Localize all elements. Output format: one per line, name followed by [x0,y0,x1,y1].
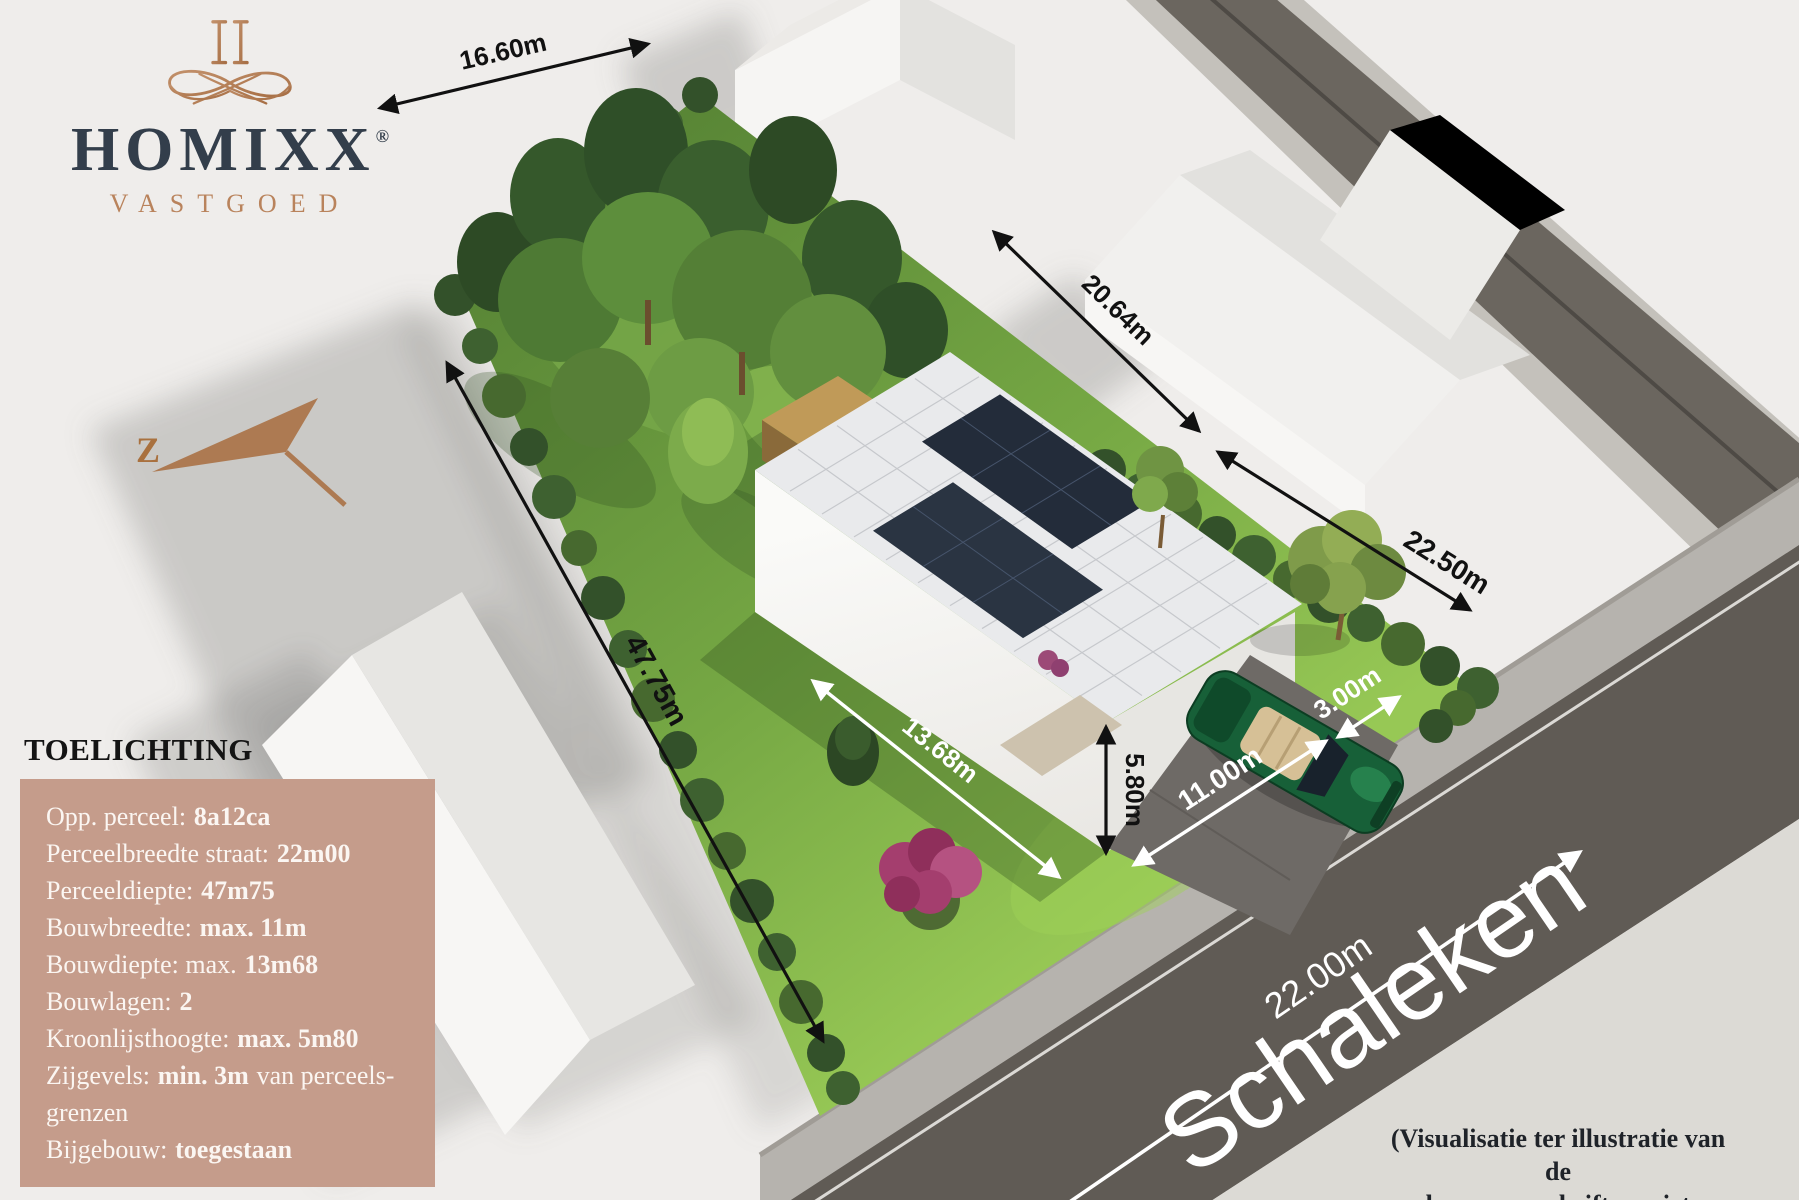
legend-item: Bouwdiepte: max.13m68 [46,946,409,983]
compass-south-label: Z [136,430,160,470]
brand-logo: HOMIXX® VASTGOED [44,14,416,219]
brand-name: HOMIXX® [44,118,416,183]
legend-title: TOELICHTING [24,732,253,768]
legend-item: Bouwlagen:2 [46,983,409,1020]
legend-box: Opp. perceel:8a12ca Perceelbreedte straa… [20,779,435,1187]
homixx-monogram-icon [145,14,315,118]
visualisation-page: 22.00m Schaleken 16.60m 20.64m 22.50m 47… [0,0,1799,1200]
registered-mark: ® [376,126,389,146]
legend-item: Perceelbreedte straat:22m00 [46,835,409,872]
disclaimer-note: (Visualisatie ter illustratie van de bou… [1390,1122,1726,1200]
legend-item: Kroonlijsthoogte:max. 5m80 [46,1020,409,1057]
legend-item: Perceeldiepte:47m75 [46,872,409,909]
legend-item: Bouwbreedte:max. 11m [46,909,409,946]
legend-item: Opp. perceel:8a12ca [46,798,409,835]
brand-subtitle: VASTGOED [44,189,416,219]
legend-item: Zijgevels:min. 3mvan perceels-grenzen [46,1057,409,1131]
legend-item: Bijgebouw:toegestaan [46,1131,409,1168]
cornice-height-label: 5.80m [1120,753,1150,827]
